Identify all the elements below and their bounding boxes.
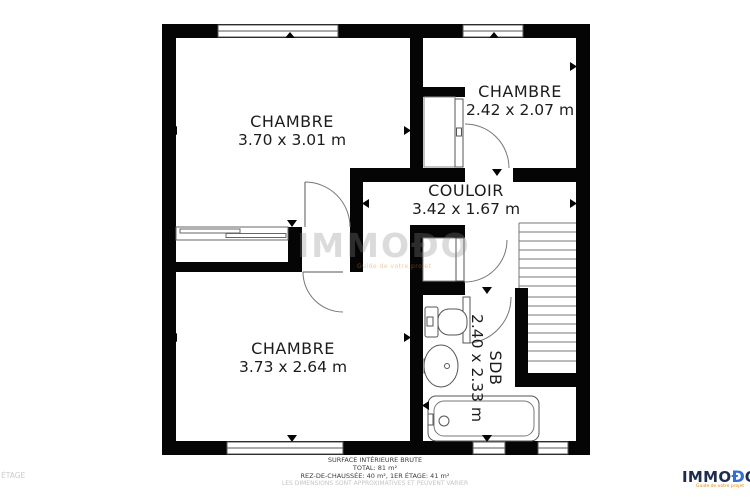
room-name: CHAMBRE: [239, 339, 347, 358]
watermark: IMMOĐO Guide de votre projet: [297, 229, 497, 270]
brand-logo: IMMOĐOT Guide de votre projet: [682, 467, 750, 489]
logo-text-2: OT: [745, 468, 750, 486]
room-dimensions: 3.73 x 2.64 m: [239, 358, 347, 377]
room-dimensions: 3.42 x 1.67 m: [412, 200, 520, 219]
window: [218, 25, 338, 37]
closet-sliding-door: [176, 227, 288, 240]
door-bedroom2: [465, 124, 509, 168]
door-bedroom1: [305, 182, 350, 227]
room-name: CHAMBRE: [238, 112, 346, 131]
sink: [424, 345, 458, 387]
logo-tagline: Guide de votre projet: [696, 484, 750, 489]
window: [473, 442, 505, 454]
door-bedroom3: [303, 272, 343, 312]
floorplan-canvas: IMMOĐO Guide de votre projet CHAMBRE 3.7…: [0, 0, 750, 500]
room-label-bathroom: SDB 2.40 x 2.33 m: [467, 314, 505, 422]
toilet: [425, 307, 467, 337]
floor-label: ÉTAGE: [1, 471, 25, 480]
room-dimensions: 3.70 x 3.01 m: [238, 131, 346, 150]
room-dimensions: 2.40 x 2.33 m: [467, 314, 486, 422]
room-label-bedroom1: CHAMBRE 3.70 x 3.01 m: [238, 112, 346, 150]
room-label-bedroom2: CHAMBRE 2.42 x 2.07 m: [466, 82, 574, 120]
room-dimensions: 2.42 x 2.07 m: [466, 101, 574, 120]
watermark-tagline: Guide de votre projet: [357, 263, 497, 270]
window: [538, 442, 568, 454]
room-label-bedroom3: CHAMBRE 3.73 x 2.64 m: [239, 339, 347, 377]
summary-title: SURFACE INTÉRIEURE BRUTE: [282, 456, 468, 464]
surface-summary: SURFACE INTÉRIEURE BRUTE TOTAL: 81 m² RE…: [282, 456, 468, 488]
room-label-hallway: COULOIR 3.42 x 1.67 m: [412, 181, 520, 219]
closet-niche-bedroom2: [424, 97, 463, 167]
room-name: CHAMBRE: [466, 82, 574, 101]
summary-disclaimer: LES DIMENSIONS SONT APPROXIMATIVES ET PE…: [282, 480, 468, 488]
room-name: SDB: [486, 314, 505, 422]
summary-total: TOTAL: 81 m²: [282, 464, 468, 472]
room-name: COULOIR: [412, 181, 520, 200]
watermark-text: IMMOĐO: [297, 226, 471, 265]
summary-floors: REZ-DE-CHAUSSÉE: 40 m², 1ER ÉTAGE: 41 m²: [282, 472, 468, 480]
window: [227, 442, 343, 454]
